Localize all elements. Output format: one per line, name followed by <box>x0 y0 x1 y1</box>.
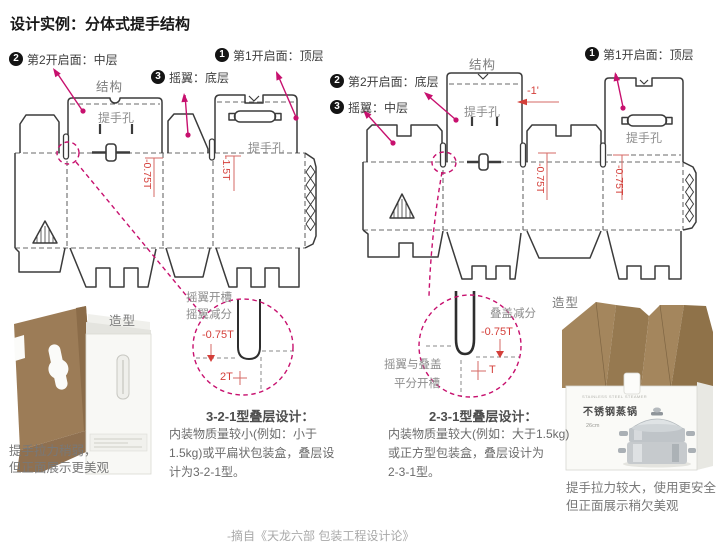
right-design-line-2: 或正方型包装盒，叠层设计为 <box>388 444 544 461</box>
left-bottom-flap-3 <box>166 248 210 277</box>
right-dim-075t-1: -0.75T <box>534 163 546 193</box>
right-glue-diamonds <box>686 174 694 222</box>
right-bottom-flap-2 <box>447 232 521 279</box>
right-handle-hole-label-1: 提手孔 <box>464 103 500 120</box>
left-handle-hole-label-1: 提手孔 <box>98 109 134 126</box>
left-structure-label: 结构 <box>96 76 123 95</box>
left-bottom-flap-2 <box>70 248 156 287</box>
right-design-heading: 2-3-1型叠层设计： <box>429 406 537 425</box>
right-detail-dim-075t: -0.75T <box>481 326 513 338</box>
left-lock-tab <box>106 144 116 161</box>
left-handle-hole-cut <box>235 111 276 122</box>
right-photo <box>562 302 713 470</box>
right-dieline <box>363 73 696 279</box>
left-detail-label-slot: 摇翼开槽 <box>186 289 232 305</box>
right-annotation-wing: 摇翼：中层 <box>348 99 408 116</box>
left-detail-dim-075t: -0.75T <box>202 329 234 341</box>
source-caption: -摘自《天龙六部 包装工程设计论》 <box>227 527 414 544</box>
badge-3-right: 3 <box>330 100 344 114</box>
right-fold-slot-1 <box>441 143 446 167</box>
left-fold-slot-2 <box>210 139 215 160</box>
box-print-product-name: 不锈钢蒸锅 <box>583 403 638 418</box>
left-detail-uslot <box>238 299 260 359</box>
right-photo-label: 造型 <box>552 292 579 311</box>
left-annotation-wing: 摇翼：底层 <box>169 69 229 86</box>
right-detail-dim-t: T <box>489 364 496 376</box>
left-zoom-connector <box>76 162 204 317</box>
box-side-face <box>697 382 713 470</box>
right-detail-uslot <box>456 291 474 354</box>
right-handle-hole-cut <box>628 115 667 126</box>
right-design-line-1: 内装物质量较大(例如：大于1.5kg) <box>388 425 569 442</box>
right-photo-caption-2: 但正面展示稍欠美观 <box>566 495 679 514</box>
left-photo-label: 造型 <box>109 310 136 329</box>
left-annotation-open-face-2: 第2开启面：中层 <box>27 51 118 68</box>
right-dim-075t-2: -0.75T <box>613 165 625 195</box>
left-detail-dim-2t: 2T <box>220 371 233 383</box>
badge-1-left: 1 <box>215 48 229 62</box>
left-design-line-1: 内装物质量较小(例如：小于 <box>169 425 317 442</box>
box-print-size: 26cm <box>586 423 599 429</box>
right-bottom-flap-4 <box>607 231 681 279</box>
right-design-line-3: 2-3-1型。 <box>388 463 440 480</box>
dimension-lines <box>145 99 629 385</box>
left-notch-mark <box>249 96 259 101</box>
right-triangle-hatch <box>394 199 410 218</box>
left-flap-trapezoid-1 <box>20 115 59 153</box>
left-dim-15t: -1.5T <box>220 156 232 181</box>
left-design-line-2: 1.5kg)或平扁状包装盒，叠层设 <box>169 444 334 461</box>
right-handle-hole-label-2: 提手孔 <box>626 129 662 146</box>
right-detail-label-wing-overlap: 摇翼与叠盖 <box>384 356 442 372</box>
left-glue-diamonds <box>306 166 315 231</box>
left-design-line-3: 计为3-2-1型。 <box>169 463 245 480</box>
left-triangle-hatch <box>37 226 53 243</box>
right-structure-label: 结构 <box>469 54 496 73</box>
right-annotation-open-face-1: 第1开启面：顶层 <box>603 46 694 63</box>
left-detail-label-reduce: 摇翼减分 <box>186 306 232 322</box>
left-bottom-flap-1 <box>15 248 65 272</box>
right-photo-caption-1: 提手拉力较大，使用更安全 <box>566 477 716 496</box>
left-glue-flap <box>305 153 316 248</box>
right-fold-slot-2 <box>521 143 526 167</box>
right-fold-slot-3 <box>601 143 606 167</box>
box-print-small-text: STAINLESS STEEL STEAMER <box>582 394 647 399</box>
right-annotation-open-face-2: 第2开启面：底层 <box>348 73 439 90</box>
box-handle-tab <box>624 373 640 394</box>
right-bottom-flap-3 <box>527 231 601 258</box>
right-zoom-connector <box>429 172 442 296</box>
right-detail-label-overlap: 叠盖减分 <box>490 305 536 321</box>
page-title: 设计实例：分体式提手结构 <box>10 13 190 34</box>
left-fold-slot-1 <box>64 134 69 159</box>
detail-slots <box>238 291 474 359</box>
badge-2-left: 2 <box>9 52 23 66</box>
packaging-design-page: 设计实例：分体式提手结构 2 第2开启面：中层 3 摇翼：底层 1 第1开启面：… <box>0 0 719 548</box>
left-photo-caption-2: 但正面展示更美观 <box>9 457 109 476</box>
left-dieline <box>15 95 316 287</box>
right-detail-label-split-slot: 平分开槽 <box>394 375 440 391</box>
box-label-area <box>90 434 147 451</box>
flap-edge-notch <box>14 335 25 361</box>
badge-2-right: 2 <box>330 74 344 88</box>
right-lock-tab <box>479 154 488 170</box>
right-notch-mark-1 <box>478 74 488 79</box>
right-notch-mark-2 <box>640 80 648 84</box>
right-glue-flap <box>683 162 696 230</box>
left-design-heading: 3-2-1型叠层设计： <box>206 406 314 425</box>
right-flap-notched-1 <box>367 125 442 162</box>
left-dim-075t: -0.75T <box>141 159 153 189</box>
left-annotation-open-face-1: 第1开启面：顶层 <box>233 47 324 64</box>
left-bottom-flap-4 <box>216 248 299 287</box>
right-dim-top: -1' <box>527 85 539 97</box>
badge-1-right: 1 <box>585 47 599 61</box>
right-flap-notched-2 <box>527 125 601 162</box>
left-handle-hole-label-2: 提手孔 <box>248 139 284 156</box>
badge-3-left: 3 <box>151 70 165 84</box>
